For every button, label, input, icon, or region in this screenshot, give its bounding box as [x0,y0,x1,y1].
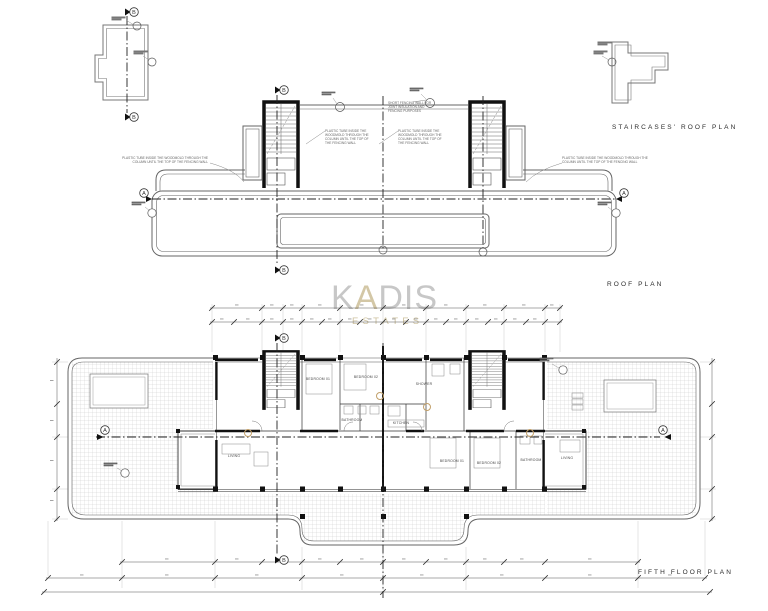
svg-text:B: B [282,558,286,564]
svg-text:A: A [622,191,626,197]
annotation-plastic-tube-right: PLASTIC TUBE INSIDE THE WOODMOLD THROUGH… [562,156,662,164]
staircase-core-fifth-right [468,350,506,410]
roof-plan-outline [152,105,616,256]
title-staircases-roof-plan: STAIRCASES' ROOF PLAN [612,124,737,131]
title-fifth-floor-plan: FIFTH FLOOR PLAN [638,569,733,576]
drawing-sheet: KADIS ESTATES [0,0,768,611]
room-label-bedroom: BEDROOM 02 [477,461,501,465]
roof-plan-section-lines [152,95,616,265]
svg-text:A: A [103,428,107,434]
svg-text:A: A [661,428,665,434]
room-label-living: LIVING [228,454,240,458]
section-marker-b: B [280,334,289,343]
room-label-shower: SHOWER [416,382,432,386]
room-label-bedroom: BEDROOM 01 [440,459,464,463]
room-label-living: LIVING [561,456,573,460]
room-label-bedroom: BEDROOM 02 [354,375,378,379]
mini-roof-right [594,42,668,103]
section-marker-b: B [280,86,289,95]
annotation-short-fencing-wall: SHORT FENCING WALL FOR JOINT INSULATION … [388,101,436,113]
annotation-plastic-tube-left: PLASTIC TUBE INSIDE THE WOODMOLD THROUGH… [108,156,208,164]
section-marker-a: A [659,426,668,435]
section-marker-b: B [130,8,139,17]
section-marker-b: B [280,556,289,565]
staircase-core-roof-right [468,100,506,188]
room-label-bathroom: BATHROOM [521,458,542,462]
mini-roof-left [95,16,156,113]
staircase-core-fifth-left [262,350,300,410]
staircase-core-roof-left [262,100,300,188]
svg-text:B: B [282,268,286,274]
svg-text:B: B [132,10,136,16]
floor-plan-drawing: B B B B B B A A A A [0,0,768,611]
annotation-plastic-tube-center-right: PLASTIC TUBE INSIDE THE WOODMOLD THROUGH… [398,129,445,146]
svg-text:B: B [282,336,286,342]
svg-text:B: B [282,88,286,94]
section-marker-b: B [280,266,289,275]
svg-text:B: B [132,115,136,121]
title-roof-plan: ROOF PLAN [607,281,663,288]
section-marker-a: A [140,189,149,198]
section-marker-a: A [101,426,110,435]
section-marker-a: A [620,189,629,198]
section-marker-b: B [130,113,139,122]
roof-plan-note-circles [132,88,620,256]
annotation-plastic-tube-center-left: PLASTIC TUBE INSIDE THE WOODMOLD THROUGH… [325,129,372,146]
svg-text:A: A [142,191,146,197]
room-label-bedroom: BEDROOM 01 [306,377,330,381]
room-label-bathroom: BATHROOM [342,418,363,422]
room-label-kitchen: KITCHEN [393,421,409,425]
